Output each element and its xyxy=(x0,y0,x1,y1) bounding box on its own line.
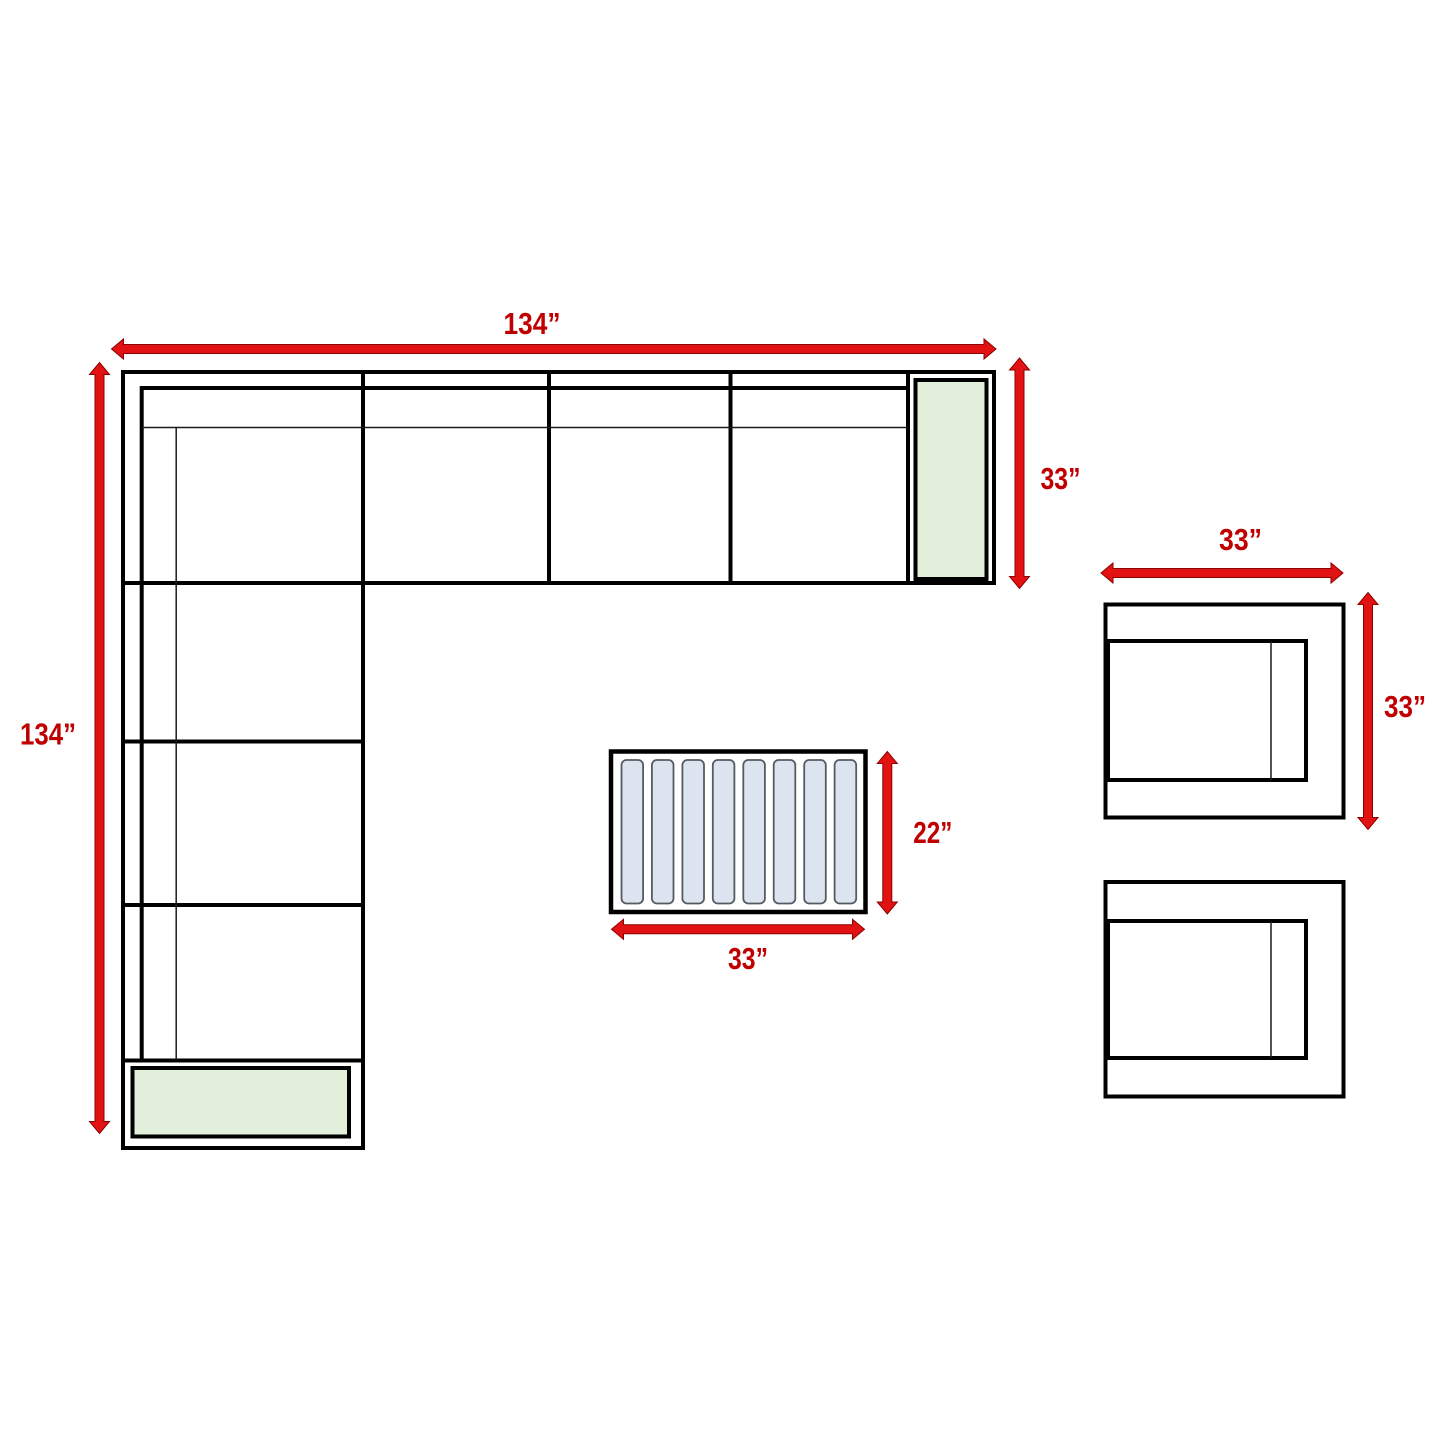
svg-text:33”: 33” xyxy=(728,941,768,976)
svg-text:33”: 33” xyxy=(1219,522,1262,557)
svg-text:33”: 33” xyxy=(1384,689,1426,724)
svg-text:33”: 33” xyxy=(1041,461,1081,496)
svg-text:134”: 134” xyxy=(20,717,76,752)
svg-text:134”: 134” xyxy=(504,306,561,341)
svg-text:22”: 22” xyxy=(913,815,952,850)
